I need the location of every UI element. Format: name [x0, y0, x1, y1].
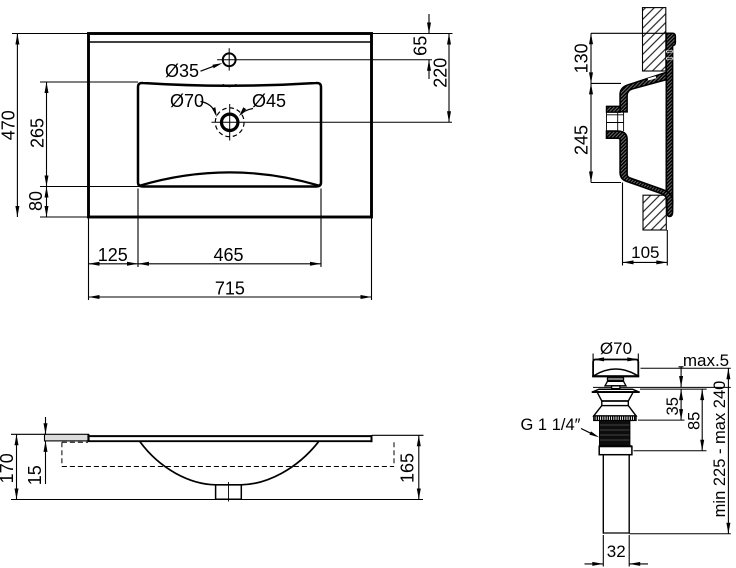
- svg-text:125: 125: [98, 245, 128, 265]
- svg-text:Ø35: Ø35: [165, 61, 199, 81]
- svg-text:470: 470: [0, 110, 19, 140]
- svg-text:max.5: max.5: [683, 351, 729, 370]
- svg-text:Ø45: Ø45: [252, 91, 286, 111]
- svg-text:220: 220: [431, 58, 451, 88]
- svg-text:Ø70: Ø70: [170, 91, 204, 111]
- svg-text:245: 245: [571, 125, 591, 155]
- svg-text:Ø70: Ø70: [600, 339, 632, 358]
- svg-text:min 225 - max 240: min 225 - max 240: [711, 381, 729, 518]
- svg-text:715: 715: [215, 278, 245, 298]
- svg-text:35: 35: [664, 397, 682, 415]
- svg-text:G 1 1/4″: G 1 1/4″: [521, 416, 581, 434]
- svg-text:130: 130: [571, 43, 591, 73]
- svg-text:165: 165: [398, 453, 418, 483]
- svg-text:85: 85: [686, 412, 704, 430]
- svg-text:465: 465: [213, 245, 243, 265]
- svg-text:32: 32: [607, 542, 626, 561]
- svg-text:15: 15: [25, 465, 45, 485]
- svg-text:80: 80: [26, 191, 46, 211]
- svg-text:170: 170: [0, 453, 17, 483]
- svg-text:105: 105: [631, 243, 659, 262]
- svg-text:265: 265: [28, 118, 48, 148]
- svg-text:65: 65: [411, 36, 431, 56]
